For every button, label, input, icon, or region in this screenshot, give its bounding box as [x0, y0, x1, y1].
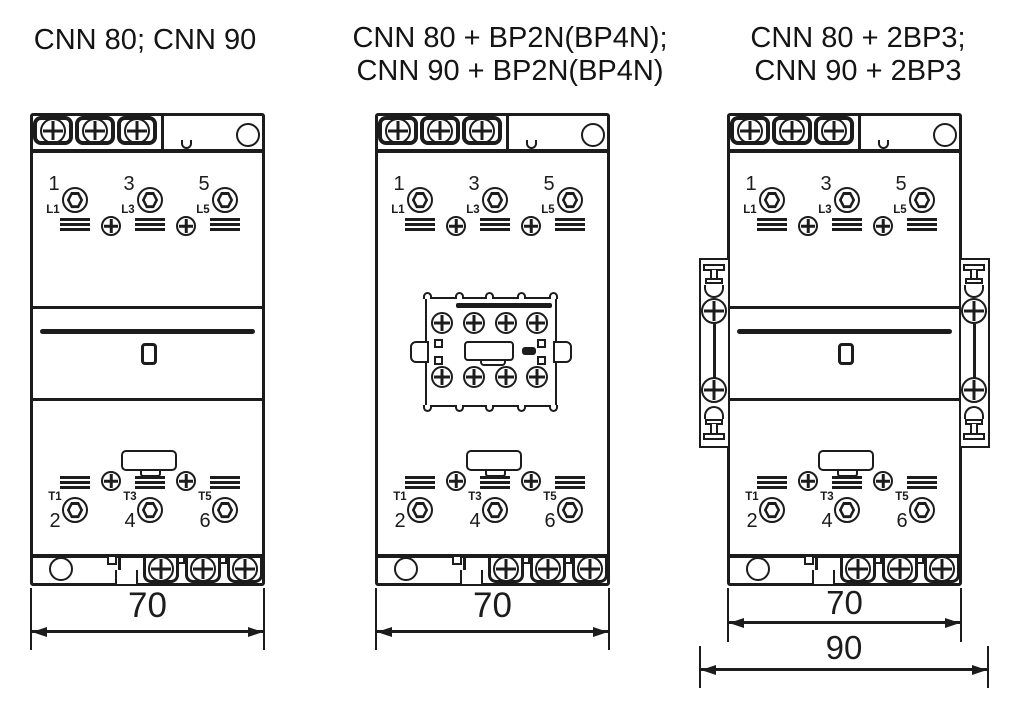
side-block-arc [964, 406, 984, 419]
din-latch-notch [452, 557, 462, 565]
arrow-right-icon [972, 665, 987, 675]
side-block-bracket [963, 433, 985, 440]
wire-clamp-icon [210, 218, 240, 231]
wire-clamp-icon [480, 476, 510, 489]
phillips-screw-icon [446, 471, 466, 491]
title-line: CNN 90 + BP2N(BP4N) [330, 55, 690, 88]
phillips-screw-icon [701, 298, 727, 324]
phillips-screw-icon [101, 216, 121, 236]
side-block-arc [704, 285, 724, 298]
phillips-screw-icon [929, 558, 955, 582]
phillips-screw-icon [798, 471, 818, 491]
arrow-left-icon [377, 627, 392, 637]
wire-clamp-icon [757, 476, 787, 489]
din-latch-notch [107, 557, 117, 565]
load-terminal-label: T5 [538, 491, 562, 503]
terminal-tab [874, 558, 882, 564]
phillips-screw-icon [961, 377, 987, 403]
phillips-screw-icon [148, 558, 174, 582]
phillips-screw-icon [521, 471, 541, 491]
block-bump [549, 292, 558, 299]
phillips-screw-terminal-icon [462, 116, 502, 145]
wire-clamp-icon [60, 476, 90, 489]
dimension-line [729, 621, 960, 624]
side-block-arc [704, 406, 724, 419]
load-terminal-label: T3 [815, 491, 839, 503]
cover-seam-line [730, 306, 959, 309]
diagram-title-2: CNN 80 + BP2N(BP4N); CNN 90 + BP2N(BP4N) [330, 22, 690, 88]
phillips-screw-icon [176, 216, 196, 236]
pole-number-label: 4 [115, 511, 145, 531]
2bp3-side-block-left [699, 258, 730, 448]
mounting-hole-icon [746, 557, 770, 581]
dimension-line [377, 630, 608, 633]
phillips-screw-icon [385, 118, 411, 144]
block-contact-square [537, 356, 546, 365]
side-block-link [713, 324, 716, 378]
phillips-screw-terminal-icon [840, 558, 876, 583]
phillips-screw-icon [190, 558, 216, 582]
cover-groove [40, 329, 255, 334]
wire-clamp-icon [832, 476, 862, 489]
din-latch-notch [804, 557, 814, 565]
title-line: CNN 80 + 2BP3; [700, 22, 1016, 55]
hex-terminal-icon [759, 187, 785, 213]
load-terminal-label: T5 [193, 491, 217, 503]
diagram-title-1: CNN 80; CNN 90 [15, 24, 275, 57]
hex-terminal-icon [482, 187, 508, 213]
phillips-screw-terminal-icon [227, 558, 263, 583]
line-terminal-label: L1 [41, 204, 65, 216]
hex-terminal-icon [834, 187, 860, 213]
pole-number-label: 6 [887, 511, 917, 531]
din-latch-foot [115, 570, 138, 586]
wire-clamp-icon [210, 476, 240, 489]
line-terminal-label: L5 [191, 204, 215, 216]
phillips-screw-icon [873, 471, 893, 491]
pole-number-label: 2 [40, 511, 70, 531]
mounting-hole-icon [49, 557, 73, 581]
wire-clamp-icon [60, 218, 90, 231]
bottom-mounting-strip [730, 554, 959, 583]
phillips-screw-icon [469, 118, 495, 144]
load-terminal-label: T3 [118, 491, 142, 503]
pole-number-label: 2 [385, 511, 415, 531]
hex-terminal-icon [62, 187, 88, 213]
terminal-tab [916, 558, 924, 564]
phillips-screw-terminal-icon [772, 116, 812, 145]
wire-clamp-icon [135, 476, 165, 489]
dimension-value: 90 [699, 630, 989, 666]
mounting-hole-icon [394, 557, 418, 581]
title-line: CNN 80; CNN 90 [15, 24, 275, 57]
phillips-screw-icon [176, 471, 196, 491]
block-side-ear [553, 341, 572, 363]
phillips-screw-terminal-icon [488, 558, 524, 583]
phillips-screw-icon [495, 312, 517, 334]
hex-terminal-icon [137, 187, 163, 213]
cover-seam-line [730, 398, 959, 401]
arrow-left-icon [32, 627, 47, 637]
dimension-value: 70 [727, 585, 962, 621]
latch-hook-icon [878, 140, 889, 149]
phillips-screw-icon [463, 312, 485, 334]
top-mounting-strip [730, 116, 959, 153]
cover-groove [737, 329, 952, 334]
wire-clamp-icon [480, 218, 510, 231]
load-terminal-label: T1 [43, 491, 67, 503]
phillips-screw-icon [821, 118, 847, 144]
contactor-drawing-cnn-2bp3: 1 3 5 L1 L3 L5 T1 T3 T5 2 4 6 [727, 113, 962, 586]
2bp3-side-block-right [959, 258, 990, 448]
pole-number-label: 4 [460, 511, 490, 531]
strip-divider [506, 116, 509, 149]
phillips-screw-icon [495, 366, 517, 388]
phillips-screw-icon [961, 298, 987, 324]
phillips-screw-terminal-icon [143, 558, 179, 583]
block-bump [423, 405, 432, 412]
phillips-screw-icon [446, 216, 466, 236]
block-marking-window [464, 341, 514, 361]
line-terminal-label: L3 [813, 204, 837, 216]
phillips-screw-icon [701, 377, 727, 403]
din-latch-foot [460, 570, 483, 586]
terminal-tab [219, 558, 227, 564]
pole-number-label: 2 [737, 511, 767, 531]
phillips-screw-icon [887, 558, 913, 582]
hex-terminal-icon [407, 187, 433, 213]
side-block-bracket [965, 278, 983, 284]
terminal-tab [522, 558, 530, 564]
dimension-width-d2: 70 [375, 588, 610, 650]
phillips-screw-icon [427, 118, 453, 144]
phillips-screw-terminal-icon [117, 116, 157, 145]
block-contact-square [537, 339, 546, 348]
wire-clamp-icon [405, 218, 435, 231]
dimensional-drawing-canvas: CNN 80; CNN 90 CNN 80 + BP2N(BP4N); CNN … [0, 0, 1024, 706]
cover-seam-line [33, 398, 262, 401]
phillips-screw-icon [124, 118, 150, 144]
title-line: CNN 90 + 2BP3 [700, 55, 1016, 88]
mounting-hole-icon [236, 123, 260, 147]
mounting-hole-icon [581, 123, 605, 147]
phillips-screw-icon [40, 118, 66, 144]
side-block-link [973, 324, 976, 378]
latch-hook-icon [526, 140, 537, 149]
diagram-title-3: CNN 80 + 2BP3; CNN 90 + 2BP3 [700, 22, 1016, 88]
wire-clamp-icon [555, 218, 585, 231]
phillips-screw-terminal-icon [924, 558, 960, 583]
phillips-screw-icon [526, 366, 548, 388]
block-bump [455, 292, 464, 299]
bp2n-aux-contact-block [425, 297, 557, 407]
wire-clamp-icon [907, 476, 937, 489]
dimension-line [32, 630, 263, 633]
phillips-screw-icon [779, 118, 805, 144]
terminal-tab [177, 558, 185, 564]
arrow-right-icon [593, 627, 608, 637]
wire-clamp-icon [832, 218, 862, 231]
phillips-screw-icon [845, 558, 871, 582]
title-line: CNN 80 + BP2N(BP4N); [330, 22, 690, 55]
top-mounting-strip [378, 116, 607, 153]
pole-number-label: 6 [190, 511, 220, 531]
block-bump [517, 405, 526, 412]
wire-clamp-icon [907, 218, 937, 231]
dimension-value: 70 [30, 588, 265, 624]
phillips-screw-icon [463, 366, 485, 388]
block-bump [423, 292, 432, 299]
block-slot [522, 347, 536, 355]
phillips-screw-terminal-icon [530, 558, 566, 583]
bottom-mounting-strip [33, 554, 262, 583]
block-label-bar [456, 303, 552, 308]
phillips-screw-terminal-icon [882, 558, 918, 583]
phillips-screw-icon [232, 558, 258, 582]
phillips-screw-icon [82, 118, 108, 144]
phillips-screw-icon [798, 216, 818, 236]
phillips-screw-icon [431, 312, 453, 334]
phillips-screw-terminal-icon [378, 116, 418, 145]
line-terminal-label: L1 [738, 204, 762, 216]
dimension-total-d3: 90 [699, 630, 989, 688]
indicator-window [141, 343, 157, 365]
side-block-arc [964, 285, 984, 298]
hex-terminal-icon [212, 187, 238, 213]
block-bump [517, 292, 526, 299]
wire-clamp-icon [405, 476, 435, 489]
nameplate [818, 450, 874, 471]
pole-number-label: 6 [535, 511, 565, 531]
mounting-hole-icon [933, 123, 957, 147]
load-terminal-label: T1 [388, 491, 412, 503]
nameplate [121, 450, 177, 471]
phillips-screw-terminal-icon [814, 116, 854, 145]
arrow-left-icon [701, 665, 716, 675]
phillips-screw-terminal-icon [420, 116, 460, 145]
phillips-screw-icon [526, 312, 548, 334]
phillips-screw-icon [737, 118, 763, 144]
pole-number-label: 4 [812, 511, 842, 531]
terminal-tab [564, 558, 572, 564]
line-terminal-label: L5 [536, 204, 560, 216]
block-bump [455, 405, 464, 412]
block-bump [485, 405, 494, 412]
dimension-width-d1: 70 [30, 588, 265, 650]
hex-terminal-icon [557, 187, 583, 213]
line-terminal-label: L3 [116, 204, 140, 216]
load-terminal-label: T3 [463, 491, 487, 503]
latch-hook-icon [181, 140, 192, 149]
block-bump [485, 292, 494, 299]
wire-clamp-icon [757, 218, 787, 231]
phillips-screw-icon [431, 366, 453, 388]
indicator-window [838, 343, 854, 365]
block-bump [549, 405, 558, 412]
phillips-screw-icon [577, 558, 603, 582]
phillips-screw-icon [101, 471, 121, 491]
block-contact-square [434, 339, 443, 348]
line-terminal-label: L3 [461, 204, 485, 216]
phillips-screw-terminal-icon [730, 116, 770, 145]
wire-clamp-icon [555, 476, 585, 489]
phillips-screw-terminal-icon [33, 116, 73, 145]
hex-terminal-icon [909, 187, 935, 213]
phillips-screw-icon [493, 558, 519, 582]
bottom-mounting-strip [378, 554, 607, 583]
block-side-ear [410, 341, 429, 363]
dimension-line [701, 668, 987, 671]
side-block-bracket [703, 433, 725, 440]
phillips-screw-terminal-icon [572, 558, 608, 583]
phillips-screw-icon [521, 216, 541, 236]
cover-seam-line [33, 306, 262, 309]
line-terminal-label: L1 [386, 204, 410, 216]
wire-clamp-icon [135, 218, 165, 231]
load-terminal-label: T1 [740, 491, 764, 503]
arrow-right-icon [248, 627, 263, 637]
nameplate [466, 450, 522, 471]
phillips-screw-terminal-icon [75, 116, 115, 145]
phillips-screw-icon [873, 216, 893, 236]
strip-divider [858, 116, 861, 149]
contactor-drawing-cnn: 1 3 5 L1 L3 L5 T1 T3 T5 2 4 6 [30, 113, 265, 586]
load-terminal-label: T5 [890, 491, 914, 503]
block-contact-square [434, 356, 443, 365]
phillips-screw-terminal-icon [185, 558, 221, 583]
block-window-tab [480, 360, 506, 366]
contactor-drawing-cnn-bp2n: 1 3 5 L1 L3 L5 T1 T3 T5 2 4 6 [375, 113, 610, 586]
side-block-bracket [705, 278, 723, 284]
line-terminal-label: L5 [888, 204, 912, 216]
dimension-value: 70 [375, 588, 610, 624]
phillips-screw-icon [535, 558, 561, 582]
top-mounting-strip [33, 116, 262, 153]
strip-divider [161, 116, 164, 149]
